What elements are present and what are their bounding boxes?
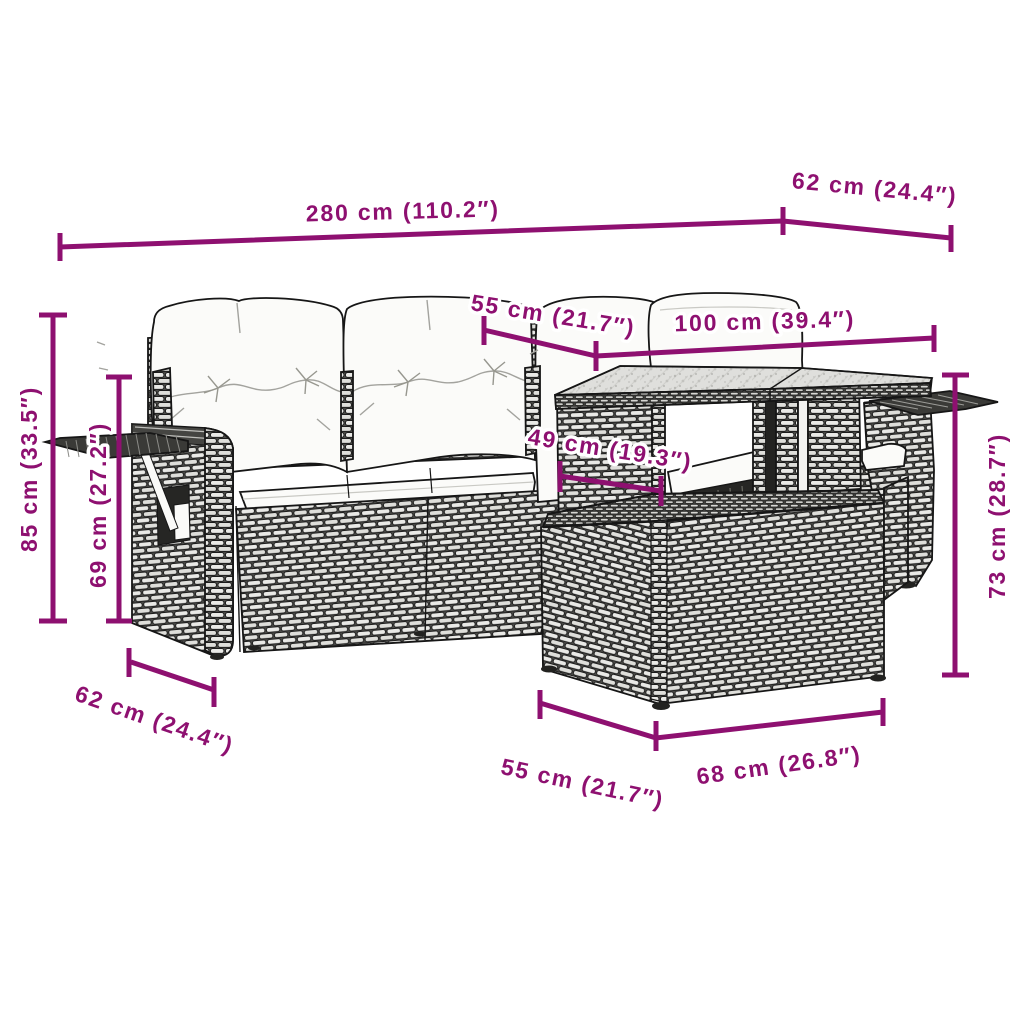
svg-text:100 cm (39.4″): 100 cm (39.4″) — [674, 306, 855, 337]
svg-text:280 cm (110.2″): 280 cm (110.2″) — [305, 195, 500, 226]
svg-text:69 cm (27.2″): 69 cm (27.2″) — [85, 422, 111, 588]
svg-text:85 cm (33.5″): 85 cm (33.5″) — [16, 386, 42, 552]
svg-text:73 cm (28.7″): 73 cm (28.7″) — [984, 433, 1010, 599]
